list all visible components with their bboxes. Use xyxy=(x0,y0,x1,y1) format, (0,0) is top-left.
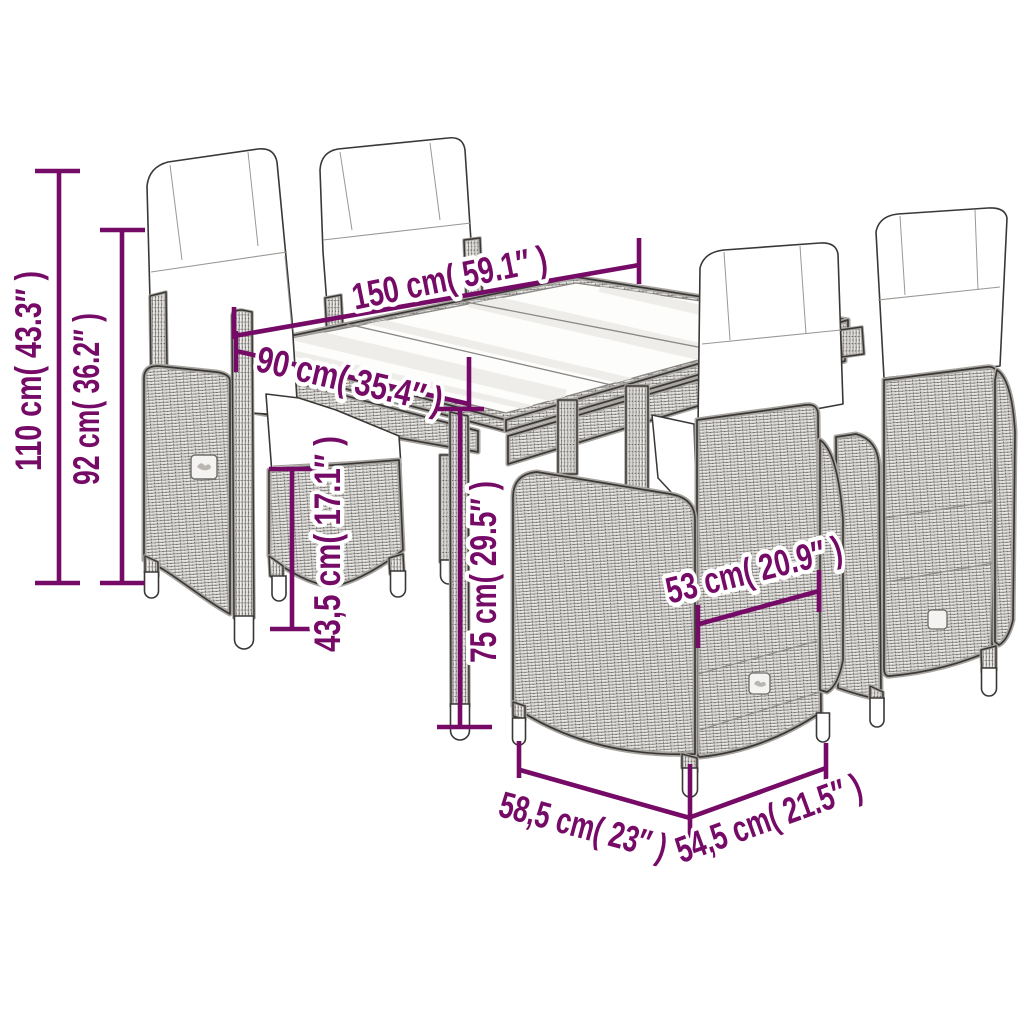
svg-text:43,5 cm( 17.1″ ): 43,5 cm( 17.1″ ) xyxy=(307,436,348,652)
svg-text:75 cm( 29.5″ ): 75 cm( 29.5″ ) xyxy=(463,481,504,663)
svg-text:110 cm( 43.3″ ): 110 cm( 43.3″ ) xyxy=(8,271,49,471)
svg-text:92 cm( 36.2″ ): 92 cm( 36.2″ ) xyxy=(66,313,107,485)
